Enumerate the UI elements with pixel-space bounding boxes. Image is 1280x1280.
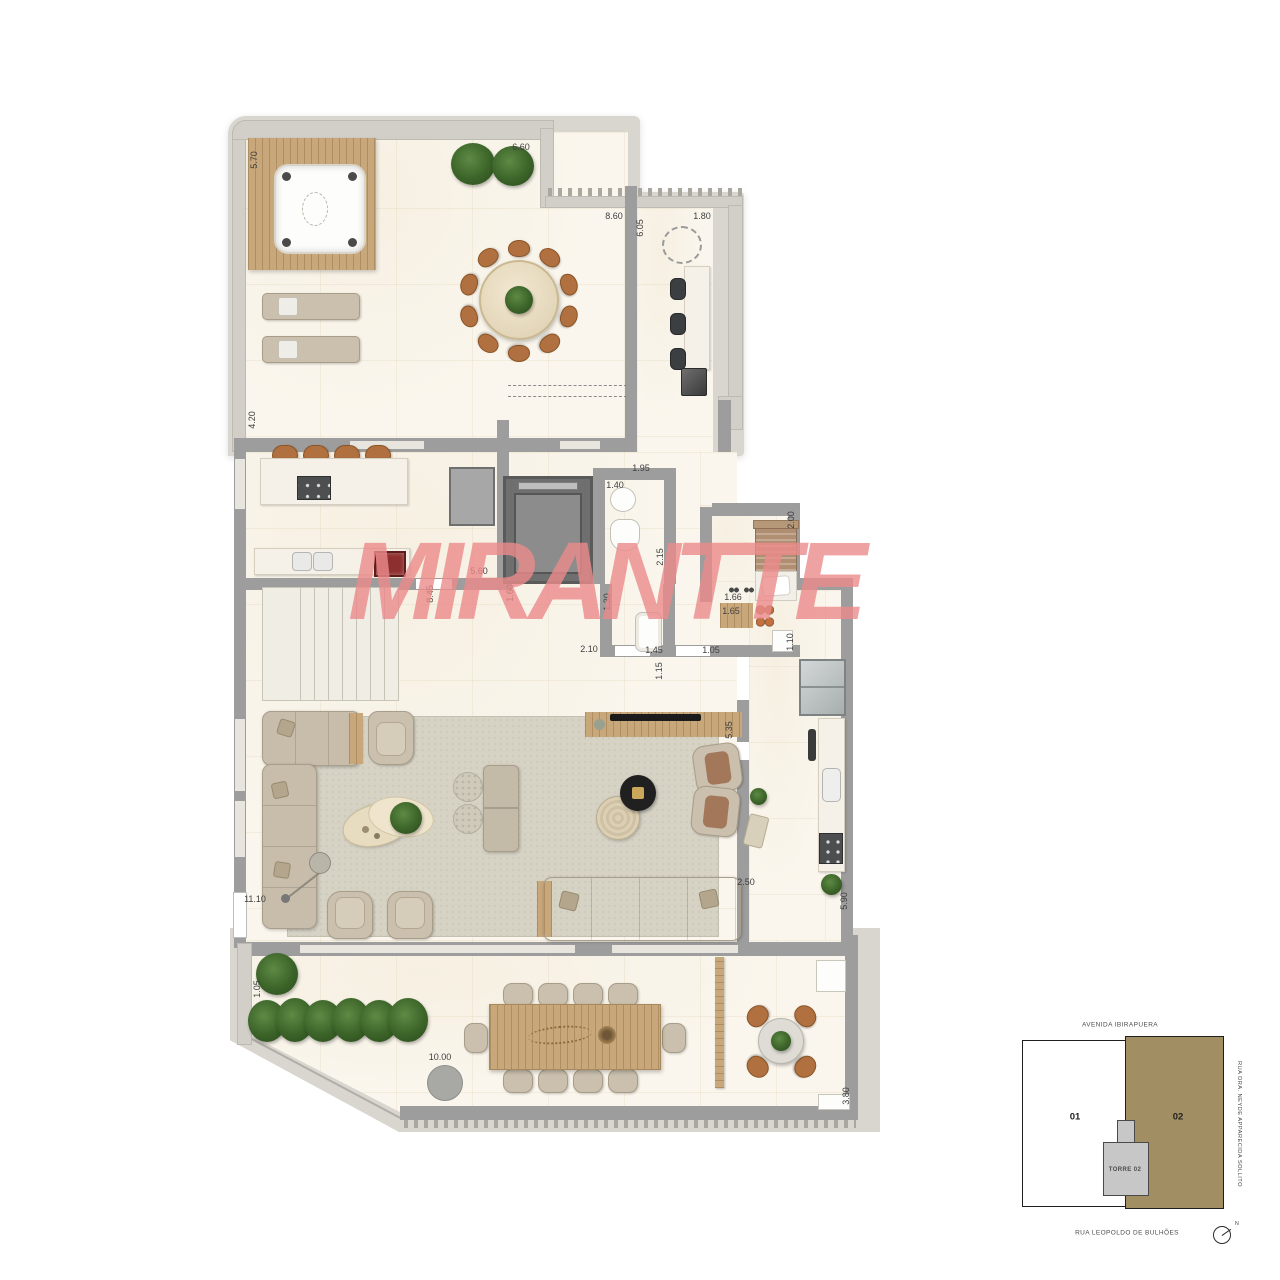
dimension-label: 2.50: [737, 877, 755, 887]
dimension-label: 6.60: [512, 142, 530, 152]
keyplan-street-right-label: RUA DRA. NEYDE APPARECIDA SOLLITO: [1236, 1061, 1242, 1187]
keyplan-unit-02-label: 02: [1173, 1112, 1184, 1123]
dimension-label: 1.05: [252, 980, 262, 998]
watermark: MIRANTTE: [348, 518, 860, 645]
dimension-label: 5.70: [249, 151, 259, 169]
dimension-label: 3.80: [841, 1087, 851, 1105]
keyplan-tower-label: TORRE 02: [1109, 1167, 1141, 1173]
keyplan-avenue-label: AVENIDA IBIRAPUERA: [1082, 1022, 1158, 1029]
keyplan-unit-01-label: 01: [1070, 1112, 1081, 1123]
dimension-label: 1.80: [693, 211, 711, 221]
dimension-label: 1.05: [702, 645, 720, 655]
dimension-label: 1.40: [606, 480, 624, 490]
dimension-label: 1.15: [654, 662, 664, 680]
dimension-label: 2.10: [580, 644, 598, 654]
dimension-label: 11.10: [244, 894, 266, 904]
dimension-label: 10.00: [429, 1052, 452, 1062]
dimension-label: 1.95: [632, 463, 650, 473]
keyplan-street-bottom-label: RUA LEOPOLDO DE BULHÕES: [1075, 1230, 1179, 1237]
floorplan-canvas: 5.706.608.606.051.804.201.951.402.152.00…: [0, 0, 1280, 1280]
dimension-label: 4.20: [247, 411, 257, 429]
dimension-label: 5.90: [839, 892, 849, 910]
dimension-label: 1.45: [645, 645, 663, 655]
dimension-label: 5.35: [724, 721, 734, 739]
dimension-label: 8.60: [605, 211, 623, 221]
keyplan: AVENIDA IBIRAPUERA 01 02 TORRE 02 RUA DR…: [1005, 1012, 1265, 1270]
north-label: N: [1235, 1221, 1239, 1227]
dimension-label: 6.05: [635, 219, 645, 237]
